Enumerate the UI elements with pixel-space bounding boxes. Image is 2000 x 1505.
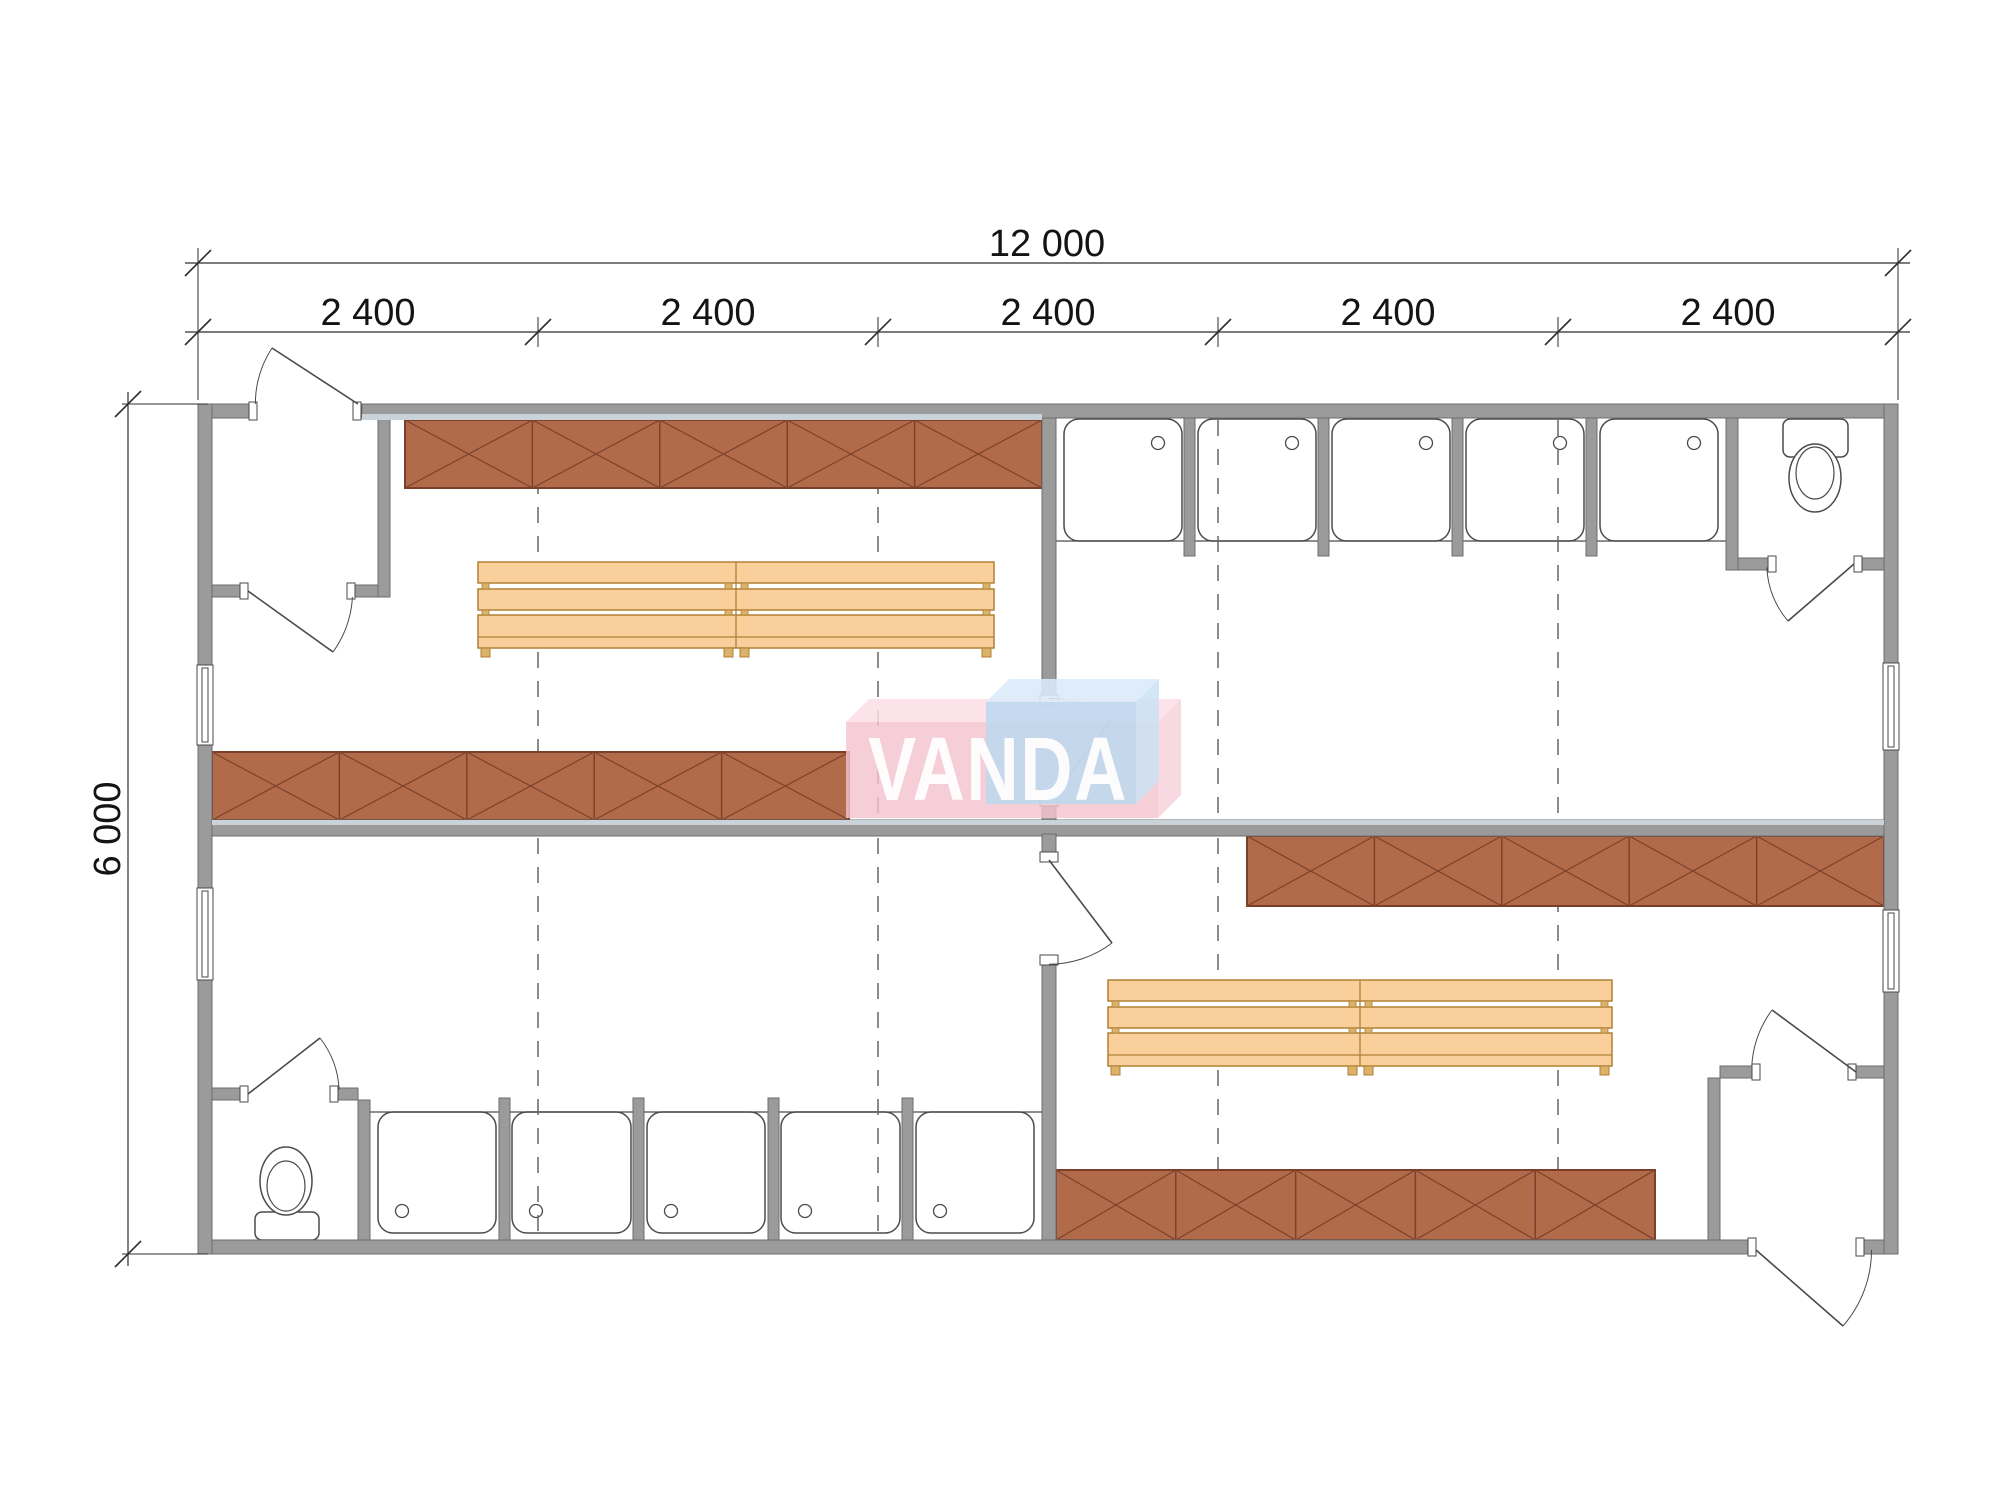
bench-foot <box>982 648 991 657</box>
door-jamb <box>1768 556 1776 572</box>
door-leaf <box>1772 1010 1856 1072</box>
bench-foot <box>1364 1066 1373 1075</box>
wall-segment <box>1042 834 1056 852</box>
shower-drain <box>530 1205 543 1218</box>
window-frame <box>202 668 208 742</box>
wall-segment <box>198 404 212 665</box>
shower-tray <box>378 1112 496 1233</box>
wall-segment <box>1586 418 1597 556</box>
bench-foot <box>1600 1066 1609 1075</box>
door-leaf <box>248 1038 320 1094</box>
logo-blue-box-top <box>986 679 1159 702</box>
door-swing-arc <box>1767 567 1788 621</box>
wall-segment <box>1856 1066 1884 1078</box>
bench-foot <box>481 648 490 657</box>
wall-segment <box>198 980 212 1254</box>
wall-segment <box>355 585 378 597</box>
dimension-label-module-3: 2 400 <box>1000 292 1095 334</box>
wall-segment <box>338 1088 358 1100</box>
door-jamb <box>347 583 355 599</box>
door-jamb <box>249 402 257 420</box>
door-jamb <box>1752 1064 1760 1080</box>
bench-foot-mark <box>1601 1001 1608 1007</box>
bench-foot-mark <box>482 583 489 589</box>
door-swing-arc <box>333 597 352 652</box>
shower-drain <box>1286 437 1299 450</box>
bench-foot-mark <box>741 610 748 615</box>
shower-tray <box>1466 419 1584 541</box>
wall-segment <box>198 1240 1748 1254</box>
shower-drain <box>799 1205 812 1218</box>
wall-segment <box>1720 1066 1752 1078</box>
window-frame <box>1888 666 1894 747</box>
wall-segment <box>1042 418 1056 695</box>
door-jamb <box>1748 1238 1756 1256</box>
door-leaf <box>248 591 333 652</box>
door-swing-arc <box>255 348 272 404</box>
shower-drain <box>1554 437 1567 450</box>
wall-segment <box>1184 418 1195 556</box>
door-jamb <box>330 1086 338 1102</box>
floor-plan-drawing: 12 000 2 400 2 400 2 400 2 400 2 400 6 0… <box>0 0 2000 1505</box>
door-swing-arc <box>1843 1250 1872 1326</box>
dimension-label-module-5: 2 400 <box>1680 292 1775 334</box>
bench-foot-mark <box>1112 1001 1119 1007</box>
wall-segment <box>1452 418 1463 556</box>
bench-foot-mark <box>1365 1028 1372 1033</box>
dimension-label-module-4: 2 400 <box>1340 292 1435 334</box>
bench-foot-mark <box>482 610 489 615</box>
shower-drain <box>1152 437 1165 450</box>
wall-segment <box>1884 750 1898 910</box>
wall-shelf-strip <box>212 820 1884 825</box>
door-swing-arc <box>1752 1010 1772 1066</box>
shower-tray <box>512 1112 631 1233</box>
wall-segment <box>378 418 390 597</box>
toilet-tank <box>255 1212 319 1240</box>
bench-foot-mark <box>983 583 990 589</box>
wall-segment <box>1884 992 1898 1254</box>
door-jamb <box>1854 556 1862 572</box>
door-jamb <box>240 583 248 599</box>
wall-segment <box>1708 1078 1720 1240</box>
door-leaf <box>272 348 358 404</box>
bench-foot-mark <box>1349 1001 1356 1007</box>
window-frame <box>202 891 208 977</box>
bench-foot-mark <box>725 610 732 615</box>
bench-foot-mark <box>725 583 732 589</box>
bench-foot-mark <box>1349 1028 1356 1033</box>
shower-drain <box>934 1205 947 1218</box>
dimension-label-total-width: 12 000 <box>989 223 1105 265</box>
window-frame <box>1888 913 1894 989</box>
wall-segment <box>902 1098 913 1240</box>
wall-segment <box>1738 558 1768 570</box>
wall-segment <box>1884 404 1898 663</box>
door-leaf <box>1756 1250 1843 1326</box>
wall-segment <box>212 585 240 597</box>
bench-foot <box>1348 1066 1357 1075</box>
wall-segment <box>212 1088 240 1100</box>
bench-foot-mark <box>1601 1028 1608 1033</box>
wall-segment <box>1726 418 1738 570</box>
door-jamb <box>1040 955 1058 965</box>
bench-foot-mark <box>741 583 748 589</box>
bench-foot <box>740 648 749 657</box>
floor-plan-page: 12 000 2 400 2 400 2 400 2 400 2 400 6 0… <box>0 0 2000 1505</box>
wall-segment <box>768 1098 779 1240</box>
wall-segment <box>1318 418 1329 556</box>
wall-segment <box>633 1098 644 1240</box>
bench-foot <box>1111 1066 1120 1075</box>
door-jamb <box>1856 1238 1864 1256</box>
dimension-label-module-2: 2 400 <box>660 292 755 334</box>
shower-tray <box>1332 419 1450 541</box>
door-swing-arc <box>320 1038 339 1090</box>
wall-segment <box>1042 965 1056 1240</box>
wall-segment <box>1862 558 1884 570</box>
wall-shelf-strip <box>362 414 1042 420</box>
door-leaf <box>1049 860 1112 943</box>
shower-tray <box>916 1112 1034 1233</box>
shower-tray <box>781 1112 900 1233</box>
wall-segment <box>198 745 212 888</box>
dimension-label-module-1: 2 400 <box>320 292 415 334</box>
bench-foot <box>724 648 733 657</box>
vanda-watermark-text: VANDA <box>868 720 1128 820</box>
door-jamb <box>353 402 361 420</box>
shower-drain <box>1420 437 1433 450</box>
shower-drain <box>396 1205 409 1218</box>
dimension-label-total-height: 6 000 <box>87 781 129 876</box>
shower-drain <box>1688 437 1701 450</box>
bench-foot-mark <box>983 610 990 615</box>
shower-tray <box>647 1112 765 1233</box>
bench-foot-mark <box>1365 1001 1372 1007</box>
door-leaf <box>1788 564 1854 621</box>
bench-foot-mark <box>1112 1028 1119 1033</box>
shower-tray <box>1064 419 1182 541</box>
shower-tray <box>1600 419 1718 541</box>
door-jamb <box>240 1086 248 1102</box>
wall-segment <box>358 1100 370 1240</box>
wall-segment <box>499 1098 510 1240</box>
shower-tray <box>1198 419 1316 541</box>
shower-drain <box>665 1205 678 1218</box>
